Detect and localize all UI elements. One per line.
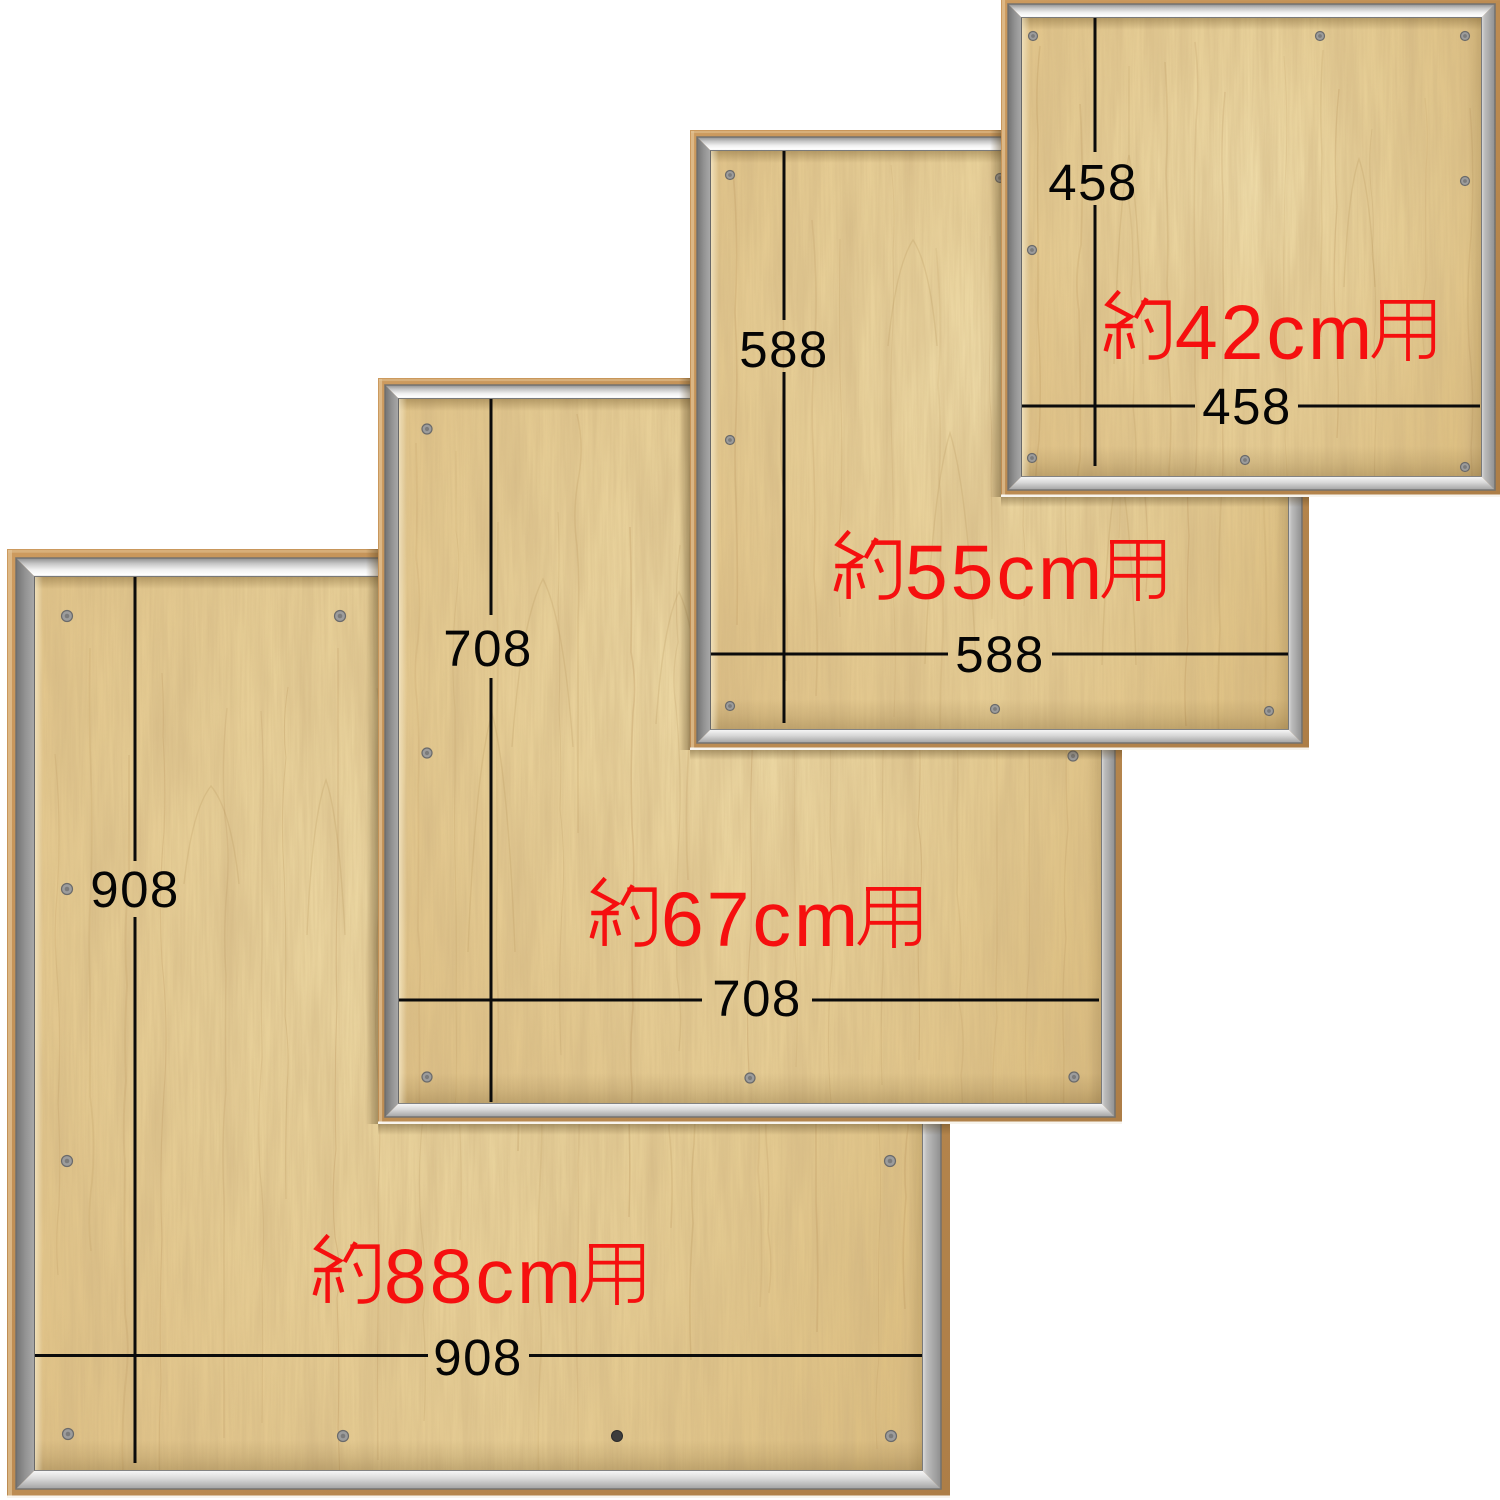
svg-text:42cm: 42cm (1175, 290, 1375, 376)
svg-text:55cm: 55cm (905, 530, 1105, 616)
svg-text:588: 588 (739, 321, 829, 378)
svg-text:708: 708 (712, 970, 802, 1027)
svg-text:908: 908 (90, 861, 180, 918)
svg-text:908: 908 (433, 1329, 523, 1386)
svg-text:708: 708 (443, 620, 533, 677)
svg-text:458: 458 (1202, 378, 1292, 435)
svg-text:458: 458 (1048, 154, 1138, 211)
svg-text:588: 588 (955, 626, 1045, 683)
svg-text:67cm: 67cm (661, 877, 861, 963)
svg-text:88cm: 88cm (384, 1234, 584, 1320)
